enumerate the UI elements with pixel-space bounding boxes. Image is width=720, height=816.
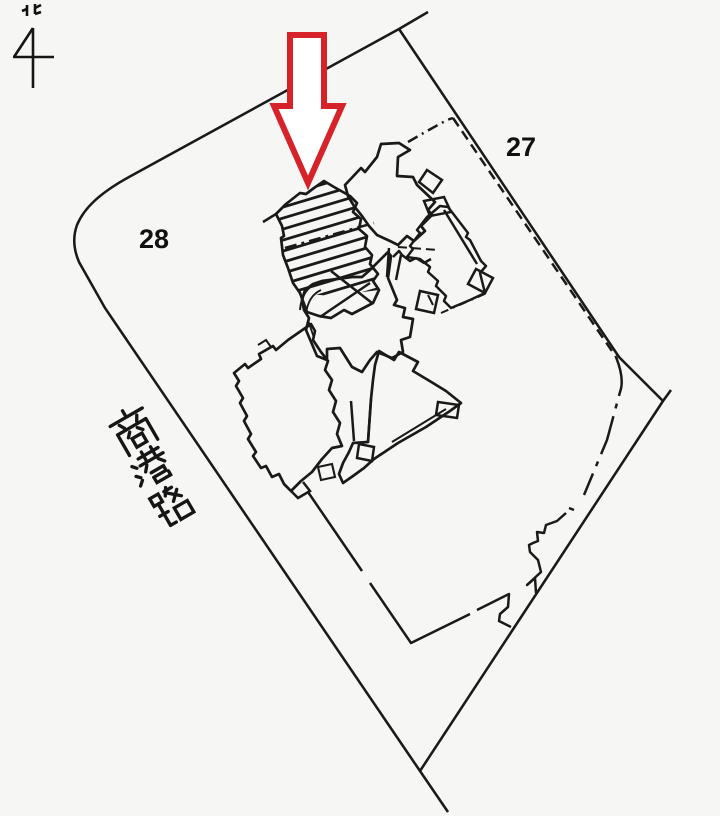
- svg-text:27: 27: [506, 132, 536, 162]
- svg-text:28: 28: [139, 224, 169, 254]
